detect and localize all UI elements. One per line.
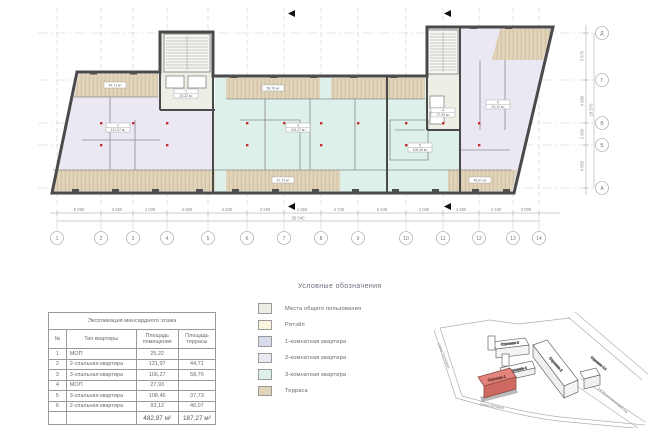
terrace-label: 58,76 м² (262, 85, 284, 91)
swatch-3room (258, 369, 272, 380)
svg-text:4 350: 4 350 (297, 207, 308, 212)
explication-table: Экспликация мансардного этажа № Тип квар… (48, 312, 216, 425)
col-header-type: Тип квартиры (66, 330, 136, 349)
legend-item: 3-комнатная квартира (258, 369, 428, 380)
legend-item: 1-комнатная квартира (258, 336, 428, 347)
svg-text:3 550: 3 550 (112, 207, 123, 212)
table-title-row: Экспликация мансардного этажа (49, 313, 216, 330)
svg-text:4 740: 4 740 (334, 207, 345, 212)
svg-text:4 880: 4 880 (580, 95, 585, 106)
svg-text:14: 14 (536, 236, 542, 242)
street-label-bottom: улица Валовая (480, 402, 504, 410)
svg-text:2: 2 (100, 236, 103, 242)
total-room-area: 482,97 м² (136, 412, 178, 425)
terrace-label: 37,73 м² (272, 177, 294, 183)
svg-text:13: 13 (510, 236, 516, 242)
room-label: 3106,27 м² (286, 123, 310, 132)
room-label: 125,22 м² (174, 89, 198, 98)
floor-plan: 2121,97 м² 3106,27 м² 5108,46 м² 693,12 … (0, 0, 650, 270)
swatch-1room (258, 336, 272, 347)
svg-text:106,27 м²: 106,27 м² (291, 128, 307, 132)
svg-text:2 900: 2 900 (580, 128, 585, 139)
svg-text:1: 1 (56, 236, 59, 242)
legend-item: Терраса (258, 386, 428, 397)
svg-text:11: 11 (440, 236, 445, 242)
svg-text:10: 10 (403, 236, 409, 242)
svg-text:121,97 м²: 121,97 м² (111, 128, 127, 132)
table-row: 22-спальная квартира121,9744,71 (49, 359, 216, 370)
svg-text:5 060: 5 060 (74, 207, 85, 212)
terrace-label: 44,71 м² (104, 82, 126, 88)
svg-text:4: 4 (166, 236, 169, 242)
room-label: 427,93 м² (431, 108, 455, 117)
table-header-row: № Тип квартиры Площадь помещения Площадь… (49, 330, 216, 349)
svg-text:46,07 м²: 46,07 м² (474, 178, 488, 182)
swatch-2room (258, 353, 272, 364)
building-3: Строение 3 (488, 336, 529, 366)
svg-text:2: 2 (117, 124, 119, 128)
room-label: 2121,97 м² (106, 123, 130, 132)
col-header-num: № (49, 330, 67, 349)
svg-text:58,76 м²: 58,76 м² (267, 86, 281, 90)
svg-text:3: 3 (132, 236, 135, 242)
svg-text:4 030: 4 030 (145, 207, 156, 212)
table-row: 53-спальная квартира108,4637,73 (49, 391, 216, 402)
swatch-terrace (258, 386, 272, 397)
site-map: Строение 3 Строение 2 Строение 4 Строени… (430, 298, 650, 428)
svg-text:93,12 м²: 93,12 м² (492, 105, 506, 109)
room-label: 693,12 м² (486, 100, 510, 109)
svg-text:3 000: 3 000 (521, 207, 532, 212)
svg-text:4 530: 4 530 (222, 207, 233, 212)
legend: Условные обозначения Места общего пользо… (258, 283, 428, 402)
terrace-label: 46,07 м² (469, 177, 491, 183)
grid-bubbles-bottom: 1 2 3 4 5 6 7 8 9 10 11 12 13 14 (51, 232, 546, 245)
apartment-zones (52, 27, 553, 193)
dimension-chain-bottom: 5 060 3 550 4 030 4 850 4 530 4 250 4 35… (50, 207, 560, 245)
svg-text:6: 6 (497, 101, 499, 105)
svg-text:Г: Г (601, 78, 604, 84)
svg-text:18 370: 18 370 (589, 103, 594, 116)
svg-text:27,93 м²: 27,93 м² (437, 113, 451, 117)
dimension-chain-right: 5 670 4 880 2 900 4 855 18 370 Д Г В Б А (580, 25, 609, 195)
building-1-highlighted: Строение 1 (478, 368, 518, 402)
table-row: 4МОП27,93 (49, 380, 216, 391)
svg-text:108,46 м²: 108,46 м² (413, 148, 429, 152)
col-header-terrace: Площадь террасы (178, 330, 215, 349)
svg-text:5 340: 5 340 (377, 207, 388, 212)
table-row: 33-спальная квартира106,2758,76 (49, 370, 216, 381)
table-row: 62-спальная квартира93,1246,07 (49, 401, 216, 412)
svg-text:37,73 м²: 37,73 м² (277, 178, 291, 182)
svg-text:4: 4 (442, 109, 444, 113)
room-label: 5108,46 м² (408, 143, 432, 152)
building-2: Строение 2 (533, 340, 578, 398)
grid-bubbles-right: Д Г В Б А (596, 27, 609, 195)
svg-text:3: 3 (297, 124, 299, 128)
legend-item: Ритэйл (258, 320, 428, 331)
drawing-sheet: 2121,97 м² 3106,27 м² 5108,46 м² 693,12 … (0, 0, 650, 428)
col-header-room: Площадь помещения (136, 330, 178, 349)
legend-title: Условные обозначения (298, 283, 428, 290)
svg-text:12: 12 (476, 236, 482, 242)
svg-text:44,71 м²: 44,71 м² (109, 83, 123, 87)
svg-text:1: 1 (185, 90, 187, 94)
legend-item: 2-комнатная квартира (258, 353, 428, 364)
svg-text:4 100: 4 100 (491, 207, 502, 212)
street-label-right: 3-й Монетчиковский пер (597, 386, 629, 414)
svg-text:4 060: 4 060 (419, 207, 430, 212)
table-row: 1МОП25,22 (49, 349, 216, 360)
svg-text:4 300: 4 300 (456, 207, 467, 212)
legend-item: Места общего пользования (258, 303, 428, 314)
terrace-top-center-2 (331, 78, 425, 99)
terrace-top-right (492, 29, 551, 60)
total-terrace-area: 187,27 м² (178, 412, 215, 425)
svg-text:5: 5 (419, 144, 421, 148)
svg-text:4 855: 4 855 (580, 160, 585, 171)
svg-text:25,22 м²: 25,22 м² (180, 94, 194, 98)
swatch-retail (258, 320, 272, 331)
street-lines (434, 312, 648, 428)
swatch-common-areas (258, 303, 272, 314)
building-4-1: Строение 4.1 (580, 355, 608, 389)
svg-text:8: 8 (320, 236, 323, 242)
svg-text:6: 6 (246, 236, 249, 242)
table-title: Экспликация мансардного этажа (49, 313, 216, 330)
table-total-row: 482,97 м² 187,27 м² (49, 412, 216, 425)
svg-text:9: 9 (357, 236, 360, 242)
svg-text:4 250: 4 250 (260, 207, 271, 212)
svg-text:5 670: 5 670 (580, 50, 585, 61)
svg-text:7: 7 (283, 236, 286, 242)
svg-text:56 040: 56 040 (292, 216, 305, 221)
svg-text:4 850: 4 850 (182, 207, 193, 212)
svg-text:5: 5 (207, 236, 210, 242)
terrace-bottom-left (53, 170, 215, 191)
